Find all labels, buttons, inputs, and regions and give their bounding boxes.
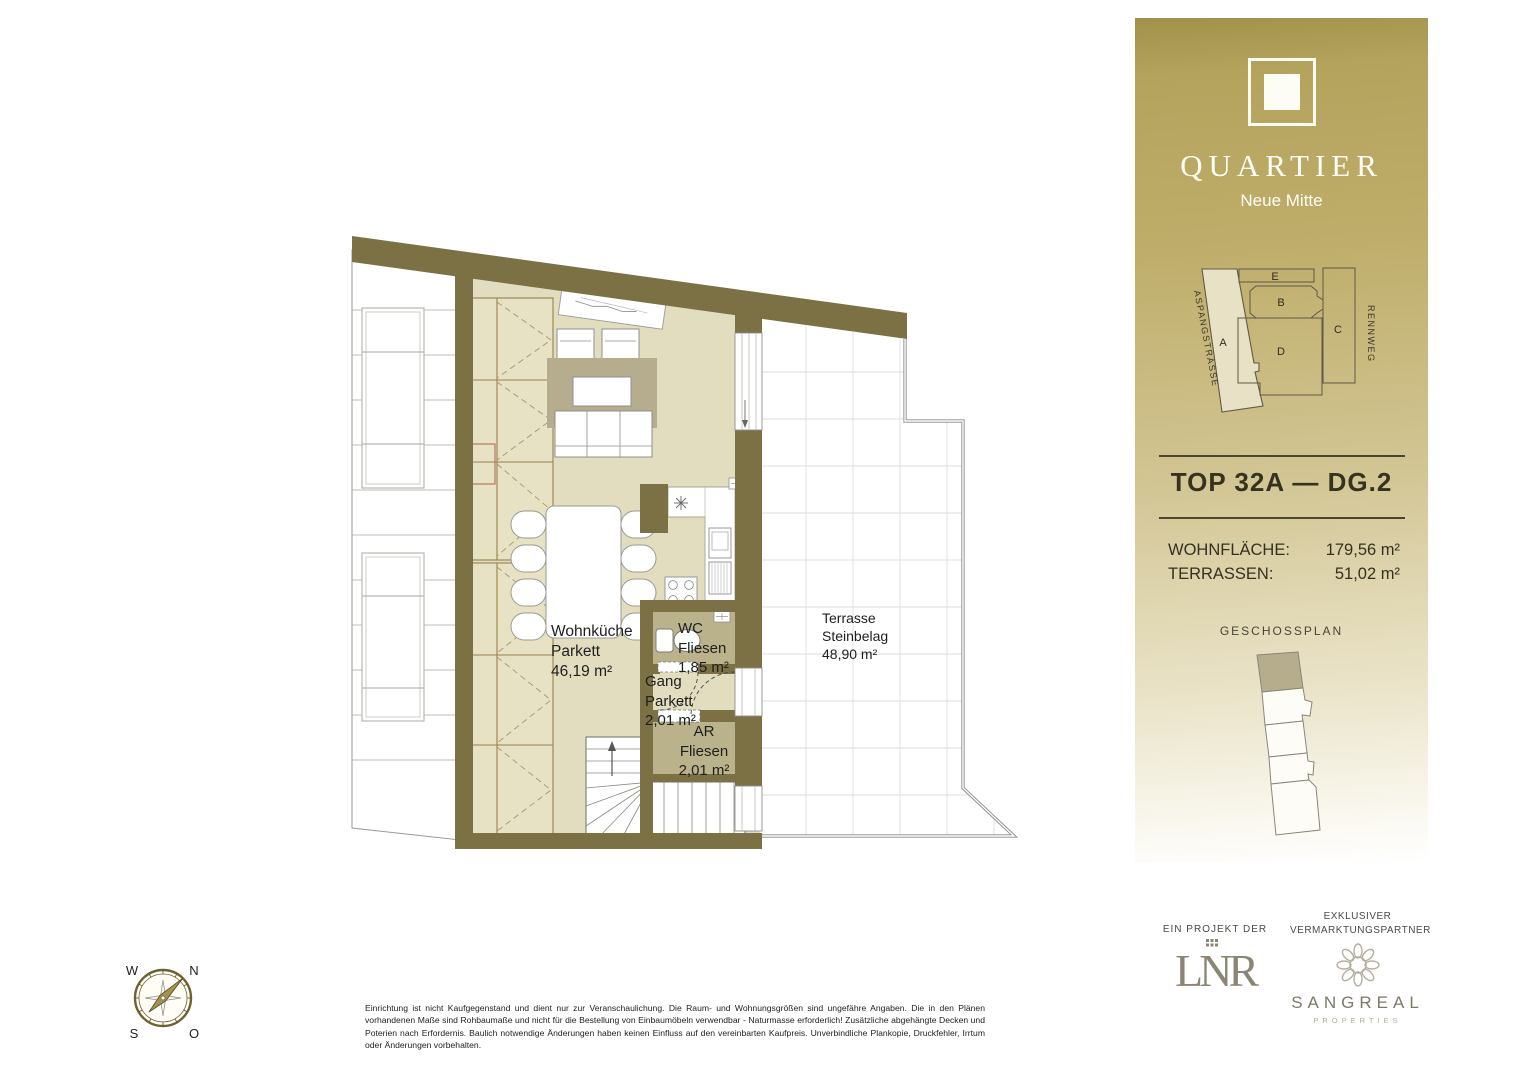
divider-bottom (1159, 517, 1405, 519)
area-value: 51,02 m² (1335, 565, 1400, 584)
site-building-d: D (1277, 346, 1285, 358)
lounge-furniture (547, 283, 667, 457)
room-label-wc: WC Fliesen 1,85 m² (678, 619, 729, 678)
sink-symbol (674, 496, 688, 510)
sofa (555, 411, 652, 457)
geschossplan-mini-plan (1250, 648, 1360, 843)
site-building-b: B (1277, 297, 1284, 309)
area-row-wohnflaeche: WOHNFLÄCHE: 179,56 m² (1168, 541, 1400, 560)
partner-caption: EXKLUSIVER VERMARKTUNGSPARTNER (1290, 910, 1425, 938)
terrace (755, 310, 1020, 840)
geschossplan-caption: GESCHOSSPLAN (1135, 624, 1428, 638)
compass-label-south: S (130, 1026, 139, 1041)
compass-rose: W N S O (118, 953, 208, 1043)
area-table: WOHNFLÄCHE: 179,56 m² TERRASSEN: 51,02 m… (1168, 541, 1400, 589)
sangreal-ornament-icon (1335, 942, 1381, 988)
site-plan: A B C D E ASPANGSTRASSE RENNWEG (1180, 255, 1410, 420)
plan-sheet: Wohnküche Parkett 46,19 m² WC Fliesen 1,… (0, 0, 1528, 1080)
compass-label-east: O (189, 1026, 199, 1041)
room-label-wohnkueche: Wohnküche Parkett 46,19 m² (551, 622, 633, 682)
site-building-c: C (1334, 324, 1342, 336)
room-label-terrasse: Terrasse Steinbelag 48,90 m² (822, 609, 888, 664)
area-row-terrassen: TERRASSEN: 51,02 m² (1168, 565, 1400, 584)
terrace-window (735, 333, 762, 430)
neighbour-area (352, 250, 460, 840)
dining-table (546, 506, 621, 638)
lnr-logo: LNR (1150, 946, 1280, 997)
disclaimer-text: Einrichtung ist nicht Kaufgegenstand und… (365, 1002, 985, 1052)
divider-top (1159, 455, 1405, 457)
sangreal-logo-subtitle: PROPERTIES (1285, 1016, 1430, 1025)
brand-logo-icon (1248, 58, 1316, 126)
brand-subtitle: Neue Mitte (1135, 191, 1428, 211)
brand-title: QUARTIER (1135, 148, 1428, 184)
terrace-door (735, 668, 762, 716)
stair-window (735, 786, 762, 831)
compass-label-north: N (189, 963, 198, 978)
street-label-rennweg: RENNWEG (1366, 305, 1376, 363)
area-label: WOHNFLÄCHE: (1168, 541, 1290, 560)
unit-title: TOP 32A — DG.2 (1135, 467, 1428, 498)
room-label-ar: AR Fliesen 2,01 m² (668, 722, 740, 781)
compass-label-west: W (126, 963, 139, 978)
site-building-a: A (1219, 337, 1227, 349)
sangreal-logo: SANGREAL (1285, 993, 1430, 1013)
project-caption: EIN PROJEKT DER (1150, 924, 1280, 935)
site-building-e: E (1271, 271, 1278, 283)
area-label: TERRASSEN: (1168, 565, 1273, 584)
area-value: 179,56 m² (1326, 541, 1400, 560)
brand-logo-inner-square (1264, 74, 1300, 110)
sidebar-panel: QUARTIER Neue Mitte A B C D E ASPANGSTRA… (1135, 18, 1428, 862)
